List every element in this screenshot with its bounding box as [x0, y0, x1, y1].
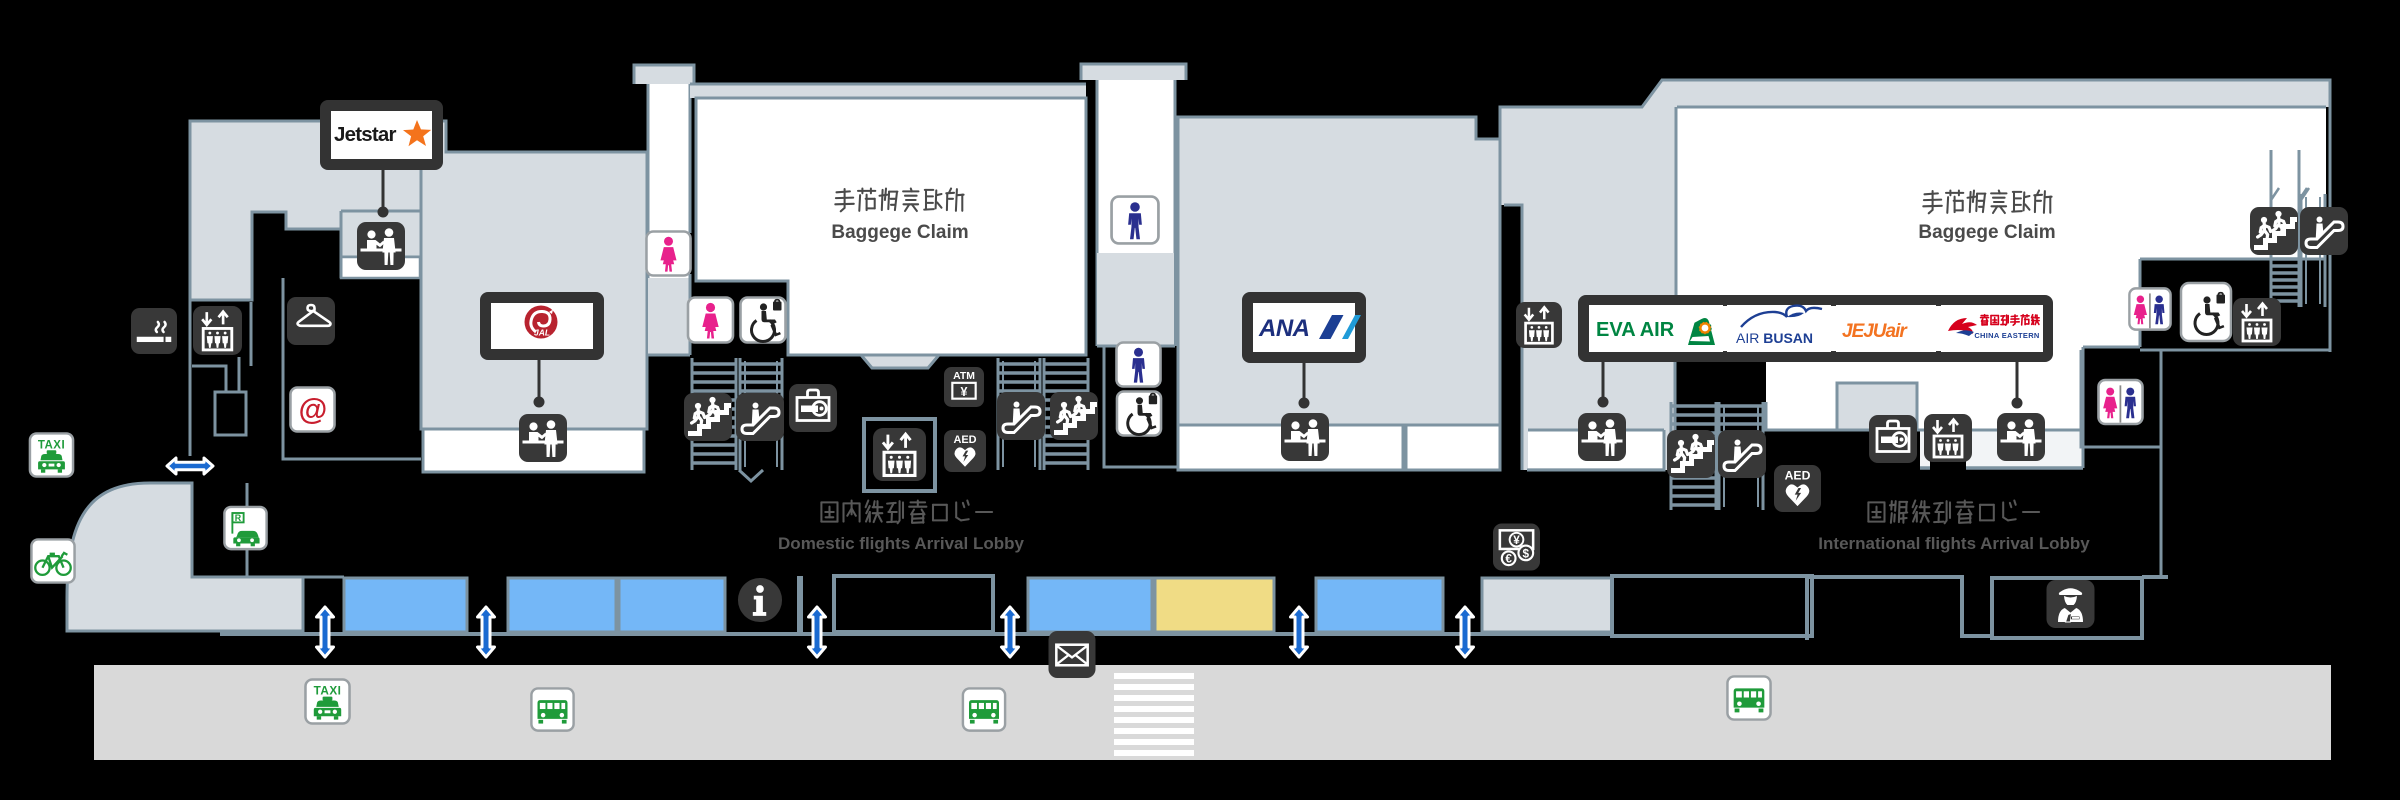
svg-text:Baggege Claim: Baggege Claim — [831, 222, 968, 243]
svg-text:Domestic flights Arrival Lobby: Domestic flights Arrival Lobby — [778, 534, 1024, 553]
svg-text:Jetstar: Jetstar — [334, 123, 396, 146]
svg-text:JAL: JAL — [534, 328, 550, 338]
svg-text:CHINA EASTERN: CHINA EASTERN — [1974, 331, 2039, 340]
svg-text:EVA AIR: EVA AIR — [1596, 319, 1675, 341]
svg-text:ANA: ANA — [1258, 315, 1310, 342]
svg-text:AIR BUSAN: AIR BUSAN — [1736, 330, 1813, 346]
svg-text:Baggege Claim: Baggege Claim — [1918, 222, 2055, 243]
svg-text:JEJUair: JEJUair — [1842, 321, 1908, 342]
svg-text:International flights Arrival: International flights Arrival Lobby — [1818, 534, 2090, 553]
